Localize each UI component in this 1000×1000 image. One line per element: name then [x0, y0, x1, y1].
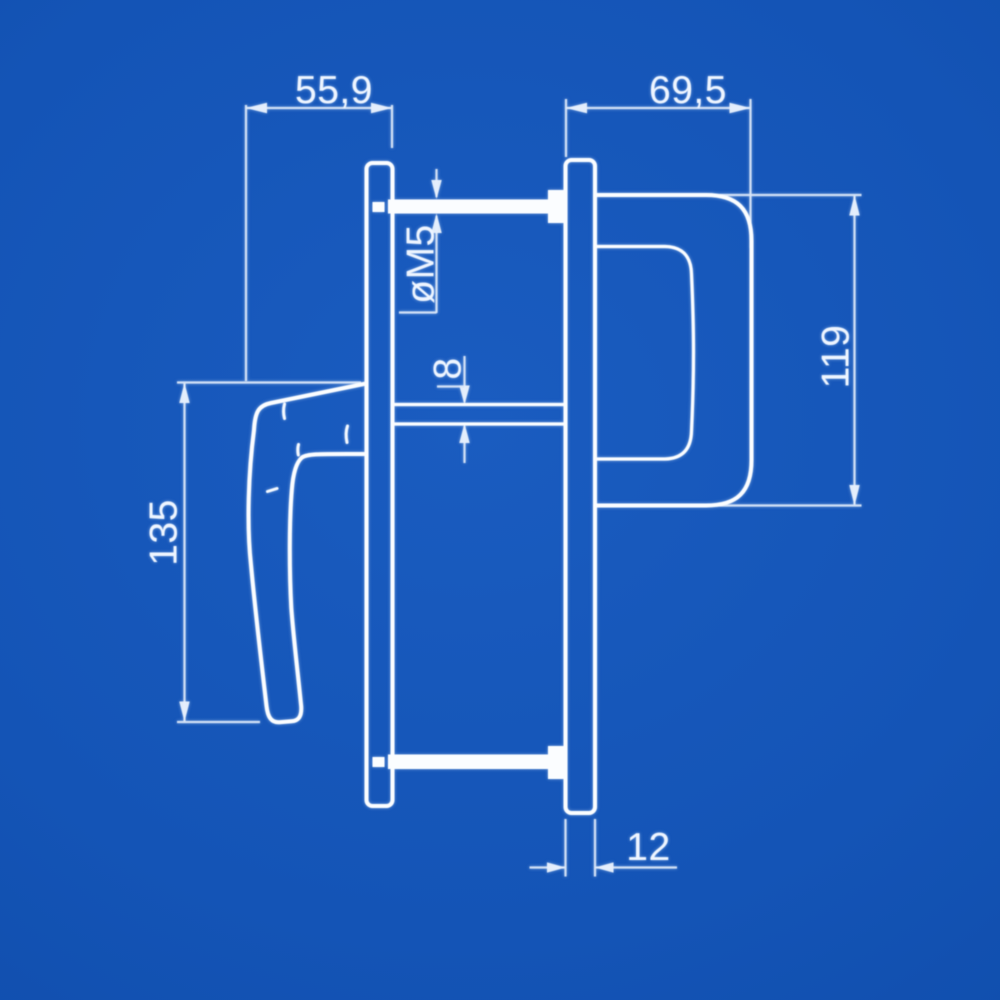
- top-screw-tip: [373, 202, 385, 212]
- dim-135-arrow-top: [179, 383, 189, 403]
- lever-parting-tick-1: [284, 404, 285, 419]
- grip-inner-outline: [595, 247, 694, 460]
- dim-8-label: 8: [427, 357, 470, 379]
- bottom-screw-tip: [373, 757, 385, 767]
- dim-m5: øM5: [399, 169, 443, 313]
- top-screw-shaft: [388, 200, 549, 214]
- bottom-screw-shaft: [388, 755, 549, 770]
- handle-lever: [249, 384, 366, 723]
- dim-119-label: 119: [815, 325, 858, 389]
- dim-55-9: 55,9: [246, 69, 392, 381]
- handle-grip: [595, 195, 752, 506]
- dim-12: 12: [530, 819, 678, 877]
- dim-12-label: 12: [626, 826, 670, 869]
- dim-69-5-label: 69,5: [649, 69, 727, 112]
- dim-69-5-arrow-left: [566, 103, 587, 113]
- bottom-screw: [373, 746, 567, 779]
- spindle: [394, 405, 566, 425]
- lever-parting-tick-2: [346, 426, 347, 443]
- dim-12-arrow-left: [547, 862, 566, 872]
- dim-135-arrow-bottom: [179, 702, 189, 722]
- dim-119-arrow-bottom: [849, 485, 859, 506]
- lever-parting-tick-3: [298, 445, 299, 456]
- dim-12-arrow-right: [595, 862, 614, 872]
- dim-m5-label: øM5: [400, 224, 443, 304]
- dim-8-arrow-down: [459, 386, 469, 405]
- handle-lever-outline: [249, 384, 366, 723]
- dim-135-label: 135: [143, 499, 186, 566]
- dim-119: 119: [712, 195, 862, 506]
- dim-55-9-arrow-left: [246, 103, 267, 113]
- lever-parting-tick-4: [268, 489, 278, 492]
- blueprint-canvas: 55,9 69,5 øM5 8 135: [0, 0, 1000, 1000]
- dim-119-arrow-top: [849, 195, 859, 216]
- right-plate: [566, 160, 596, 813]
- dim-55-9-arrow-right: [371, 103, 392, 113]
- technical-drawing: 55,9 69,5 øM5 8 135: [0, 0, 1000, 1000]
- dim-69-5-arrow-right: [730, 103, 751, 113]
- dim-8: 8: [427, 356, 470, 463]
- left-plate: [367, 163, 393, 806]
- dim-8-arrow-up: [459, 424, 469, 444]
- dim-m5-arrow-down: [431, 180, 441, 199]
- dim-55-9-label: 55,9: [295, 69, 373, 112]
- top-screw: [373, 190, 567, 223]
